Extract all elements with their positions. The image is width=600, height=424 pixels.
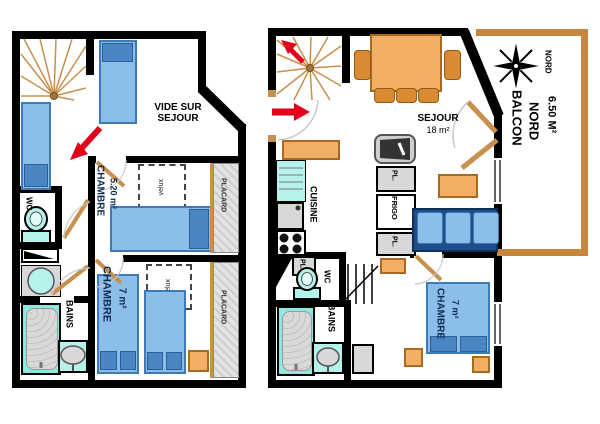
- lp-vide-sur-sejour-label: VIDE SUR SEJOUR: [146, 103, 210, 124]
- rp-coffee-table: [438, 174, 478, 198]
- lp-placard-top-edge: [210, 163, 213, 253]
- rp-cuisine-label: CUISINE: [308, 186, 317, 234]
- lp-placard-top-label: PLACARD: [219, 178, 226, 240]
- rp-chair-right: [444, 50, 461, 80]
- lp-velux1-box: velux: [138, 164, 186, 210]
- rp-wall-wc-right: [339, 252, 346, 307]
- rp-stair-fan: [277, 37, 341, 100]
- lp-placard-bottom-edge: [210, 262, 213, 378]
- lp-wc-label: WC: [24, 197, 32, 217]
- rp-chair-bottom1: [374, 88, 395, 103]
- lp-chambre1-area-label: 5.20 m²: [108, 178, 117, 242]
- rp-pl3-label: PL.: [298, 259, 305, 274]
- rp-washbasin: [312, 342, 344, 374]
- rp-nightstand-right: [472, 356, 490, 373]
- lp-bed-mezzanine-pillow: [102, 43, 133, 62]
- rp-wall-left: [268, 28, 276, 388]
- rp-chair-left: [354, 50, 371, 80]
- lp-bed-chambre2-b-pillow1: [147, 352, 163, 370]
- rp-bathtub-inner: [282, 311, 312, 371]
- lp-wall-left: [12, 31, 20, 388]
- rp-pl2-label: PL.: [390, 236, 397, 254]
- lp-chambre2-area-label: 7 m²: [116, 288, 127, 334]
- rp-kitchen-sink: [276, 202, 304, 230]
- rp-balcon-line1-label: BALCON: [510, 90, 524, 174]
- rp-entrance-jamb-bottom: [268, 135, 276, 142]
- rp-bains-label: BAINS: [326, 304, 335, 346]
- rp-chair-bottom3: [418, 88, 439, 103]
- lp-placard-bottom-label: PLACARD: [219, 290, 226, 352]
- rp-sofa-cushion1: [417, 212, 443, 244]
- lp-door-gap-chambre1: [96, 156, 126, 163]
- lp-bed-chambre1-pillow: [189, 209, 209, 249]
- rp-corridor-shelf: [352, 344, 374, 374]
- lp-door-gap-chambre2: [95, 255, 123, 262]
- rp-sejour-label: SEJOUR: [414, 114, 462, 125]
- lp-wall-topright: [198, 31, 206, 92]
- lp-velux1-label: velux: [158, 179, 165, 195]
- rp-kitchen-counter: [276, 160, 306, 202]
- rp-wc-label: WC: [322, 270, 330, 292]
- lp-bed-chambre2-a-pillow2: [120, 351, 136, 370]
- rp-chair-bottom2: [396, 88, 417, 103]
- rp-chambre-area-label: 7 m²: [450, 300, 459, 340]
- lp-chambre1-label: CHAMBRE: [94, 165, 105, 255]
- rp-sofa-cushion3: [473, 212, 499, 244]
- rp-kitchen-counter-top: [282, 140, 340, 160]
- lp-bed-left-pillow: [24, 164, 48, 187]
- rp-pl1-label: PL.: [390, 170, 397, 188]
- lp-wall-wc-right: [55, 186, 62, 249]
- rp-dining-table: [370, 34, 442, 92]
- lp-wall-stair: [86, 31, 94, 75]
- rp-entrance-jamb-top: [268, 90, 276, 97]
- rp-balcon-area-label: 6.50 M²: [545, 96, 557, 166]
- lp-stair-fan: [21, 39, 86, 100]
- floorplan-canvas: velux velux: [0, 0, 600, 424]
- lp-shelf-box: [21, 248, 59, 263]
- lp-wall-bottom: [12, 380, 246, 388]
- lp-bed-chambre2-b-pillow2: [166, 352, 182, 370]
- rp-window-chambre: [493, 302, 503, 346]
- rp-sofa-cushion2: [445, 212, 471, 244]
- lp-bathtub-inner: [26, 308, 58, 370]
- rp-balcon-line2-label: NORD: [527, 102, 541, 160]
- rp-balcony-border-right: [581, 29, 588, 256]
- rp-nightstand-left: [404, 348, 423, 367]
- rp-sejour-area-label: 18 m²: [414, 126, 462, 135]
- rp-hall-shelf: [380, 258, 406, 274]
- rp-stove: [276, 230, 306, 256]
- rp-frigo-label: FRIGO: [390, 196, 398, 228]
- rp-wall-bottom: [268, 380, 502, 388]
- rp-bed-pillow2: [460, 336, 487, 352]
- rp-window-sejour: [493, 158, 503, 204]
- lp-shower: [21, 265, 61, 297]
- rp-chambre-label: CHAMBRE: [434, 288, 445, 350]
- rp-balcony-border-bottom: [497, 249, 588, 256]
- lp-nightstand: [188, 350, 209, 372]
- rp-wall-stair: [342, 28, 350, 83]
- lp-chambre2-label: CHAMBRE: [100, 266, 112, 358]
- compass-icon: [492, 42, 540, 90]
- rp-entrance-gap: [268, 96, 276, 136]
- lp-wall-top: [12, 31, 206, 39]
- rp-tv-stand: [374, 134, 416, 164]
- rp-nord-small-label: NORD: [543, 50, 551, 86]
- rp-wall-bains-right: [344, 300, 351, 388]
- rp-balcony-border-top: [476, 29, 588, 36]
- lp-bains-label: BAINS: [64, 300, 73, 346]
